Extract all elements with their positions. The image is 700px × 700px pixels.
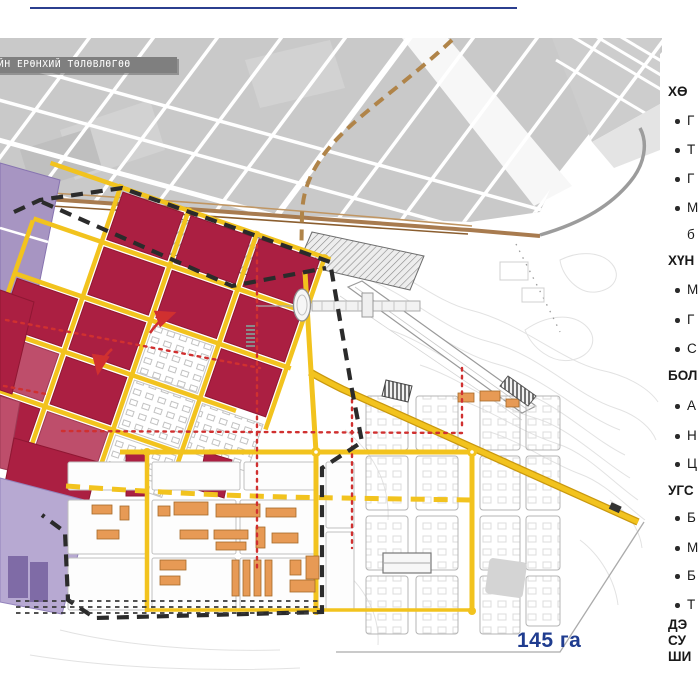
- panel-bullet-item: М: [668, 200, 698, 215]
- panel-bullet-item: Г: [668, 171, 694, 186]
- panel-bullet-item: А: [668, 398, 696, 413]
- panel-bullet-item: М: [668, 282, 698, 297]
- panel-bullet-item: С: [668, 341, 697, 356]
- panel-heading: БОЛ: [668, 368, 697, 383]
- future-expansion-grid: [336, 396, 644, 652]
- panel-bullet-item: Г: [668, 312, 694, 327]
- panel-footer-bold: СУ: [668, 633, 686, 649]
- site-area-label: 145 га: [517, 629, 581, 653]
- panel-bullet-item: Т: [668, 597, 695, 612]
- panel-bullet-item: Ц: [668, 456, 697, 471]
- panel-heading: ХӨ: [668, 84, 688, 99]
- panel-bullet-item: М: [668, 540, 698, 555]
- panel-bullet-item: Б: [668, 510, 696, 525]
- panel-footer-bold: ДЭ: [668, 617, 687, 633]
- master-plan-map: [0, 38, 662, 690]
- slide-accent-rule: [30, 7, 517, 9]
- panel-bullet-continuation: б: [668, 227, 695, 242]
- panel-heading: УГС: [668, 483, 694, 498]
- panel-bullet-item: Н: [668, 428, 697, 443]
- panel-footer-bold: ШИ: [668, 649, 691, 665]
- panel-bullet-item: Г: [668, 113, 694, 128]
- panel-bullet-item: Б: [668, 568, 696, 583]
- panel-bullet-item: Т: [668, 142, 695, 157]
- panel-heading: ХҮН: [668, 253, 694, 268]
- right-text-panel: ХӨ Г Т Г М б ХҮН М Г С БОЛ А Н Ц УГС Б М…: [668, 84, 700, 684]
- gray-reservoir: [485, 558, 528, 599]
- map-title-banner: ЙН ЕРӨНХИЙ ТӨЛӨВЛӨГӨӨ: [0, 57, 177, 73]
